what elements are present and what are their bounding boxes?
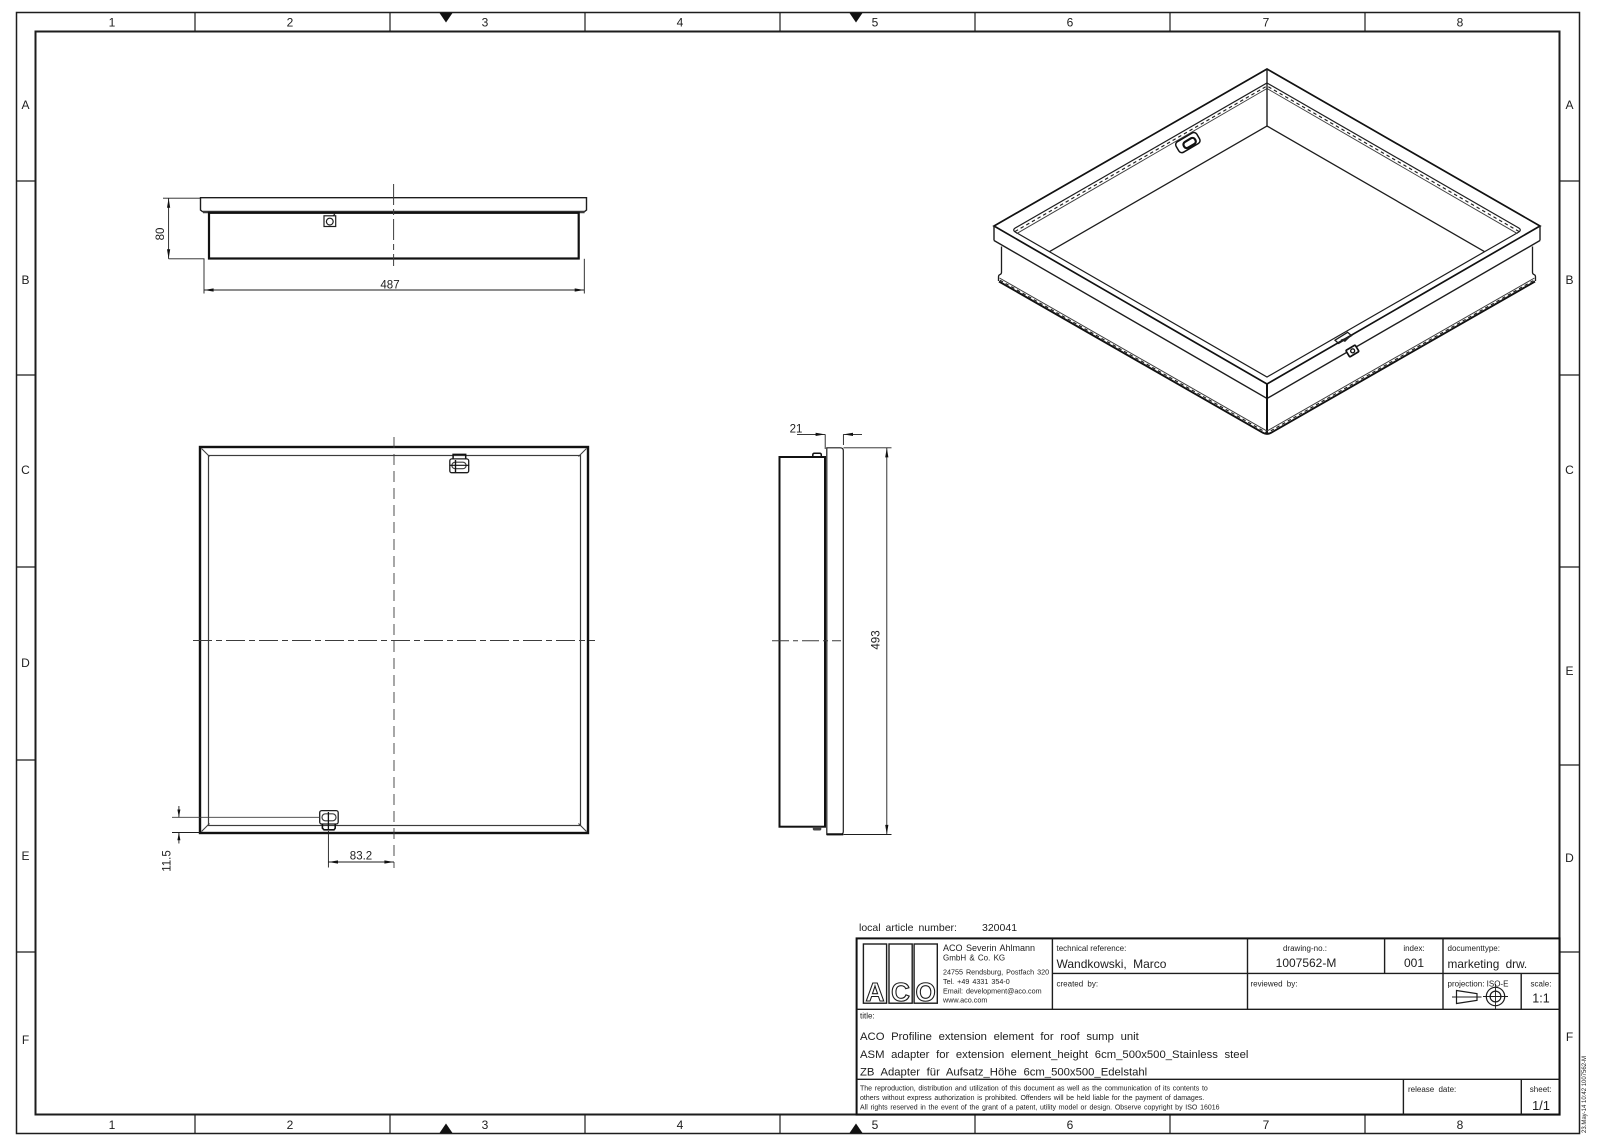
svg-text:projection: ISO-E: projection: ISO-E [1448, 980, 1509, 989]
svg-text:C: C [1565, 463, 1574, 477]
svg-text:ZB Adapter für Aufsatz_Höhe 6c: ZB Adapter für Aufsatz_Höhe 6cm_500x500_… [860, 1067, 1147, 1079]
svg-text:5: 5 [872, 16, 879, 30]
svg-text:Email: development@aco.com: Email: development@aco.com [943, 987, 1042, 996]
svg-text:5: 5 [872, 1118, 879, 1132]
svg-text:title:: title: [860, 1012, 875, 1021]
svg-text:D: D [1565, 851, 1574, 865]
svg-text:7: 7 [1263, 16, 1270, 30]
svg-text:O: O [915, 977, 935, 1007]
svg-text:24755 Rendsburg, Postfach 320: 24755 Rendsburg, Postfach 320 [943, 968, 1049, 977]
svg-text:others without express authori: others without express authorization is … [860, 1095, 1204, 1102]
svg-text:ACO Profiline extension elemen: ACO Profiline extension element for roof… [860, 1031, 1140, 1043]
svg-text:marketing drw.: marketing drw. [1448, 957, 1528, 971]
svg-text:11.5: 11.5 [162, 850, 174, 872]
svg-text:6: 6 [1067, 16, 1074, 30]
svg-text:drawing-no.:: drawing-no.: [1283, 944, 1327, 953]
svg-text:001: 001 [1404, 956, 1424, 970]
svg-text:www.aco.com: www.aco.com [942, 996, 987, 1005]
svg-text:1: 1 [109, 1118, 116, 1132]
svg-text:1/1: 1/1 [1532, 1098, 1550, 1113]
svg-text:8: 8 [1457, 16, 1464, 30]
svg-text:8: 8 [1457, 1118, 1464, 1132]
svg-text:Tel. +49 4331 354-0: Tel. +49 4331 354-0 [943, 977, 1010, 986]
svg-text:2: 2 [287, 16, 294, 30]
svg-text:Wandkowski, Marco: Wandkowski, Marco [1057, 957, 1167, 971]
svg-text:1007562-M: 1007562-M [1276, 956, 1337, 970]
svg-text:83.2: 83.2 [350, 851, 372, 863]
svg-text:E: E [1565, 664, 1573, 678]
svg-text:documenttype:: documenttype: [1448, 944, 1500, 953]
svg-text:C: C [891, 977, 910, 1007]
svg-text:2: 2 [287, 1118, 294, 1132]
svg-text:The reproduction, distribution: The reproduction, distribution and utili… [860, 1086, 1208, 1093]
svg-text:technical reference:: technical reference: [1057, 944, 1127, 953]
svg-text:All rights reserved in the eve: All rights reserved in the event of the … [860, 1105, 1220, 1112]
svg-text:reviewed by:: reviewed by: [1251, 980, 1298, 989]
svg-text:6: 6 [1067, 1118, 1074, 1132]
svg-text:487: 487 [380, 279, 399, 291]
svg-text:local article number:: local article number: [859, 922, 957, 934]
svg-text:7: 7 [1263, 1118, 1270, 1132]
svg-text:GmbH & Co. KG: GmbH & Co. KG [943, 954, 1005, 963]
svg-text:ASM adapter for extension elem: ASM adapter for extension element_height… [860, 1049, 1248, 1061]
svg-text:scale:: scale: [1531, 980, 1552, 989]
svg-text:F: F [22, 1033, 29, 1047]
svg-text:A: A [866, 977, 885, 1007]
svg-text:A: A [1565, 98, 1573, 112]
svg-text:80: 80 [155, 228, 167, 241]
svg-text:B: B [1565, 273, 1573, 287]
svg-text:21: 21 [790, 424, 803, 436]
svg-text:index:: index: [1403, 944, 1424, 953]
svg-text:sheet:: sheet: [1530, 1085, 1552, 1094]
svg-text:3: 3 [482, 1118, 489, 1132]
svg-text:A: A [21, 98, 29, 112]
svg-text:B: B [21, 273, 29, 287]
svg-text:release date:: release date: [1408, 1085, 1456, 1094]
svg-text:C: C [21, 463, 30, 477]
svg-text:4: 4 [677, 1118, 684, 1132]
svg-text:F: F [1566, 1030, 1573, 1044]
svg-text:1:1: 1:1 [1532, 992, 1549, 1006]
svg-text:493: 493 [871, 630, 883, 649]
svg-text:ACO Severin Ahlmann: ACO Severin Ahlmann [943, 943, 1035, 953]
svg-text:1: 1 [109, 16, 116, 30]
svg-text:23.May-14 10:42 1007562-M: 23.May-14 10:42 1007562-M [1582, 1056, 1588, 1133]
svg-text:E: E [21, 849, 29, 863]
svg-text:4: 4 [677, 16, 684, 30]
svg-text:3: 3 [482, 16, 489, 30]
svg-text:D: D [21, 656, 30, 670]
svg-text:320041: 320041 [982, 922, 1017, 934]
svg-text:created by:: created by: [1057, 980, 1099, 989]
